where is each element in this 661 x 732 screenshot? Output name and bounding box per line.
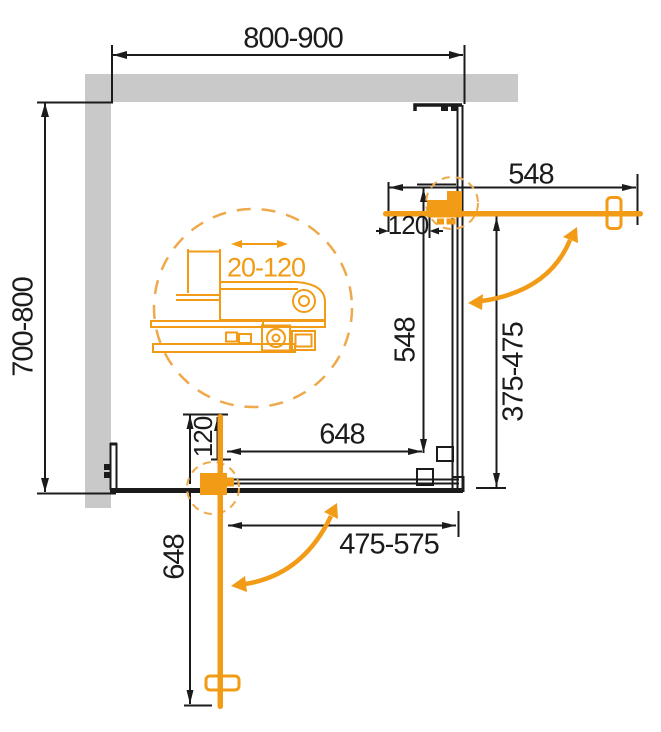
dim-label-bottom-door: 648 <box>161 534 190 579</box>
dim-label-bottom-offset: 120 <box>190 417 216 457</box>
dim-label-detail-range: 20-120 <box>227 255 305 282</box>
dim-label-top-width: 800-900 <box>243 25 342 54</box>
top-wall <box>85 74 518 102</box>
bottom-fixed-panel <box>110 480 463 491</box>
dimension-lines <box>37 45 638 706</box>
shower-diagram-stage: 800-900 700-800 548 120 548 375-475 648 … <box>0 0 661 732</box>
panel-connector-upper <box>437 447 453 461</box>
dim-label-right-panel: 548 <box>392 317 421 362</box>
shower-enclosure-diagram <box>0 0 661 732</box>
detail-bubble <box>151 209 352 407</box>
bottom-sliding-door <box>187 414 239 709</box>
right-swing-arrow <box>482 240 570 301</box>
detail-circle <box>154 209 352 407</box>
dim-label-top-door: 548 <box>508 161 553 190</box>
dim-label-left-depth: 700-800 <box>10 277 39 376</box>
frame-profiles <box>104 105 464 491</box>
dim-label-right-opening: 375-475 <box>500 322 529 421</box>
bottom-roller-carriage <box>200 473 227 495</box>
dim-label-top-offset: 120 <box>388 212 428 238</box>
dim-label-bottom-panel: 648 <box>319 421 364 450</box>
bottom-door-glass <box>218 414 224 709</box>
dim-bottom-door-lines <box>184 490 212 706</box>
right-fixed-panel <box>453 105 463 489</box>
left-wall <box>85 74 111 508</box>
dim-label-bottom-opening: 475-575 <box>339 531 438 560</box>
